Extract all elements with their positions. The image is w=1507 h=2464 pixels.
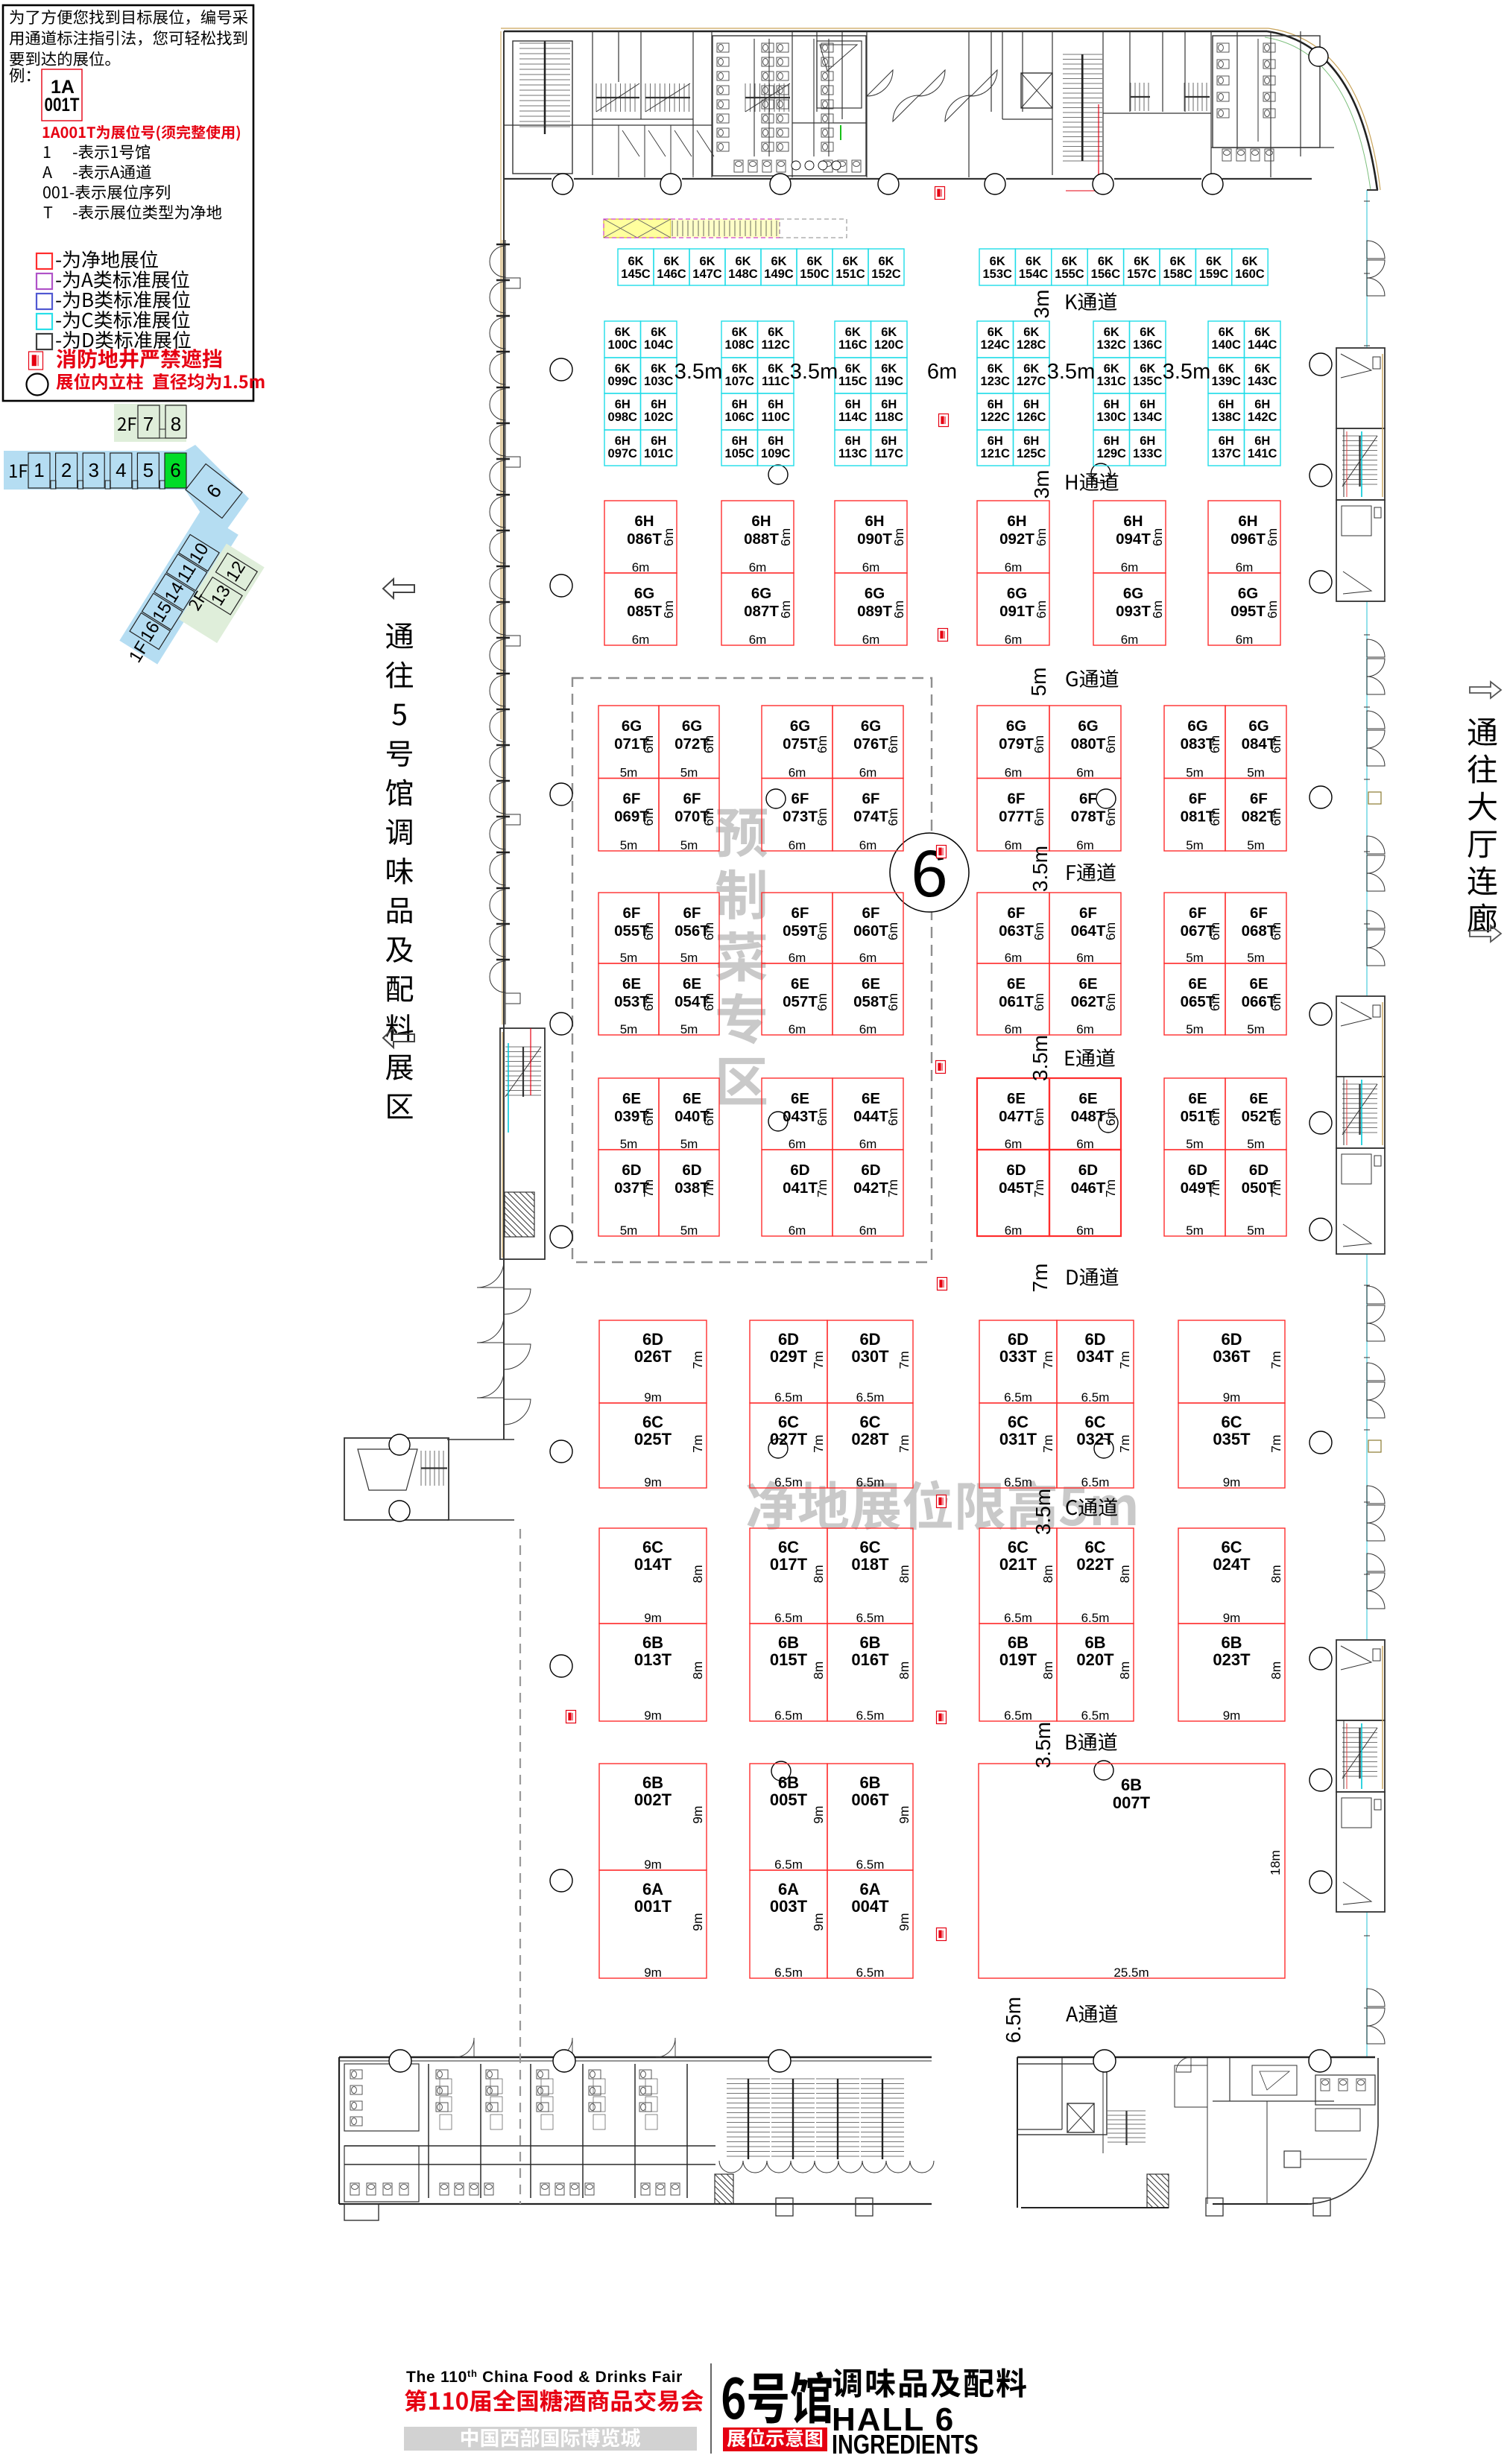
svg-text:3.5m: 3.5m: [1029, 846, 1052, 892]
svg-text:6.5m: 6.5m: [1081, 1475, 1110, 1489]
svg-text:9m: 9m: [644, 1708, 662, 1723]
svg-text:8m: 8m: [1269, 1565, 1283, 1583]
svg-text:155C: 155C: [1055, 267, 1084, 281]
svg-text:6H: 6H: [634, 513, 654, 530]
svg-text:6m: 6m: [661, 601, 676, 618]
svg-text:102C: 102C: [644, 411, 674, 424]
svg-text:6m: 6m: [778, 528, 793, 546]
svg-text:4: 4: [116, 459, 126, 481]
svg-text:6E: 6E: [1249, 1090, 1268, 1107]
svg-text:6E: 6E: [862, 1090, 880, 1107]
svg-text:6E: 6E: [1249, 975, 1268, 992]
svg-text:6H: 6H: [1140, 398, 1155, 411]
svg-text:6E: 6E: [791, 1090, 809, 1107]
svg-text:6C: 6C: [1008, 1538, 1029, 1556]
svg-text:058T: 058T: [853, 993, 888, 1010]
svg-text:6m: 6m: [1034, 528, 1049, 546]
svg-text:6m: 6m: [1005, 1022, 1023, 1036]
svg-text:3.5m: 3.5m: [674, 360, 722, 384]
svg-text:6m: 6m: [1236, 633, 1254, 647]
svg-text:6F: 6F: [1079, 905, 1097, 922]
svg-text:6E: 6E: [622, 1090, 641, 1107]
svg-text:6.5m: 6.5m: [774, 1475, 803, 1489]
svg-text:6K: 6K: [1134, 255, 1149, 268]
svg-text:062T: 062T: [1071, 993, 1106, 1010]
svg-text:6K: 6K: [1023, 362, 1039, 376]
svg-text:6K: 6K: [663, 255, 679, 268]
svg-text:6H: 6H: [1023, 434, 1039, 448]
svg-text:5m: 5m: [680, 1223, 698, 1238]
svg-text:6B: 6B: [778, 1773, 799, 1792]
svg-text:034T: 034T: [1076, 1347, 1114, 1366]
svg-text:6H: 6H: [1254, 398, 1270, 411]
svg-text:7m: 7m: [1269, 1435, 1283, 1453]
svg-text:096T: 096T: [1230, 531, 1266, 548]
svg-text:001T: 001T: [45, 95, 80, 115]
svg-text:002T: 002T: [634, 1790, 672, 1809]
svg-text:7m: 7m: [1103, 1179, 1118, 1197]
svg-text:7m: 7m: [1040, 1351, 1055, 1369]
svg-text:5m: 5m: [620, 1223, 638, 1238]
svg-text:6: 6: [170, 459, 180, 481]
svg-text:7m: 7m: [811, 1435, 826, 1453]
svg-text:6m: 6m: [1103, 1108, 1118, 1126]
svg-text:5m: 5m: [1247, 766, 1265, 780]
svg-text:6m: 6m: [1076, 766, 1094, 780]
svg-text:105C: 105C: [725, 447, 755, 460]
svg-text:107C: 107C: [725, 375, 755, 388]
svg-text:099C: 099C: [608, 375, 638, 388]
svg-text:6E: 6E: [1188, 975, 1207, 992]
svg-text:6m: 6m: [789, 1137, 806, 1151]
svg-text:6K: 6K: [845, 326, 861, 339]
svg-text:122C: 122C: [981, 411, 1011, 424]
svg-text:042T: 042T: [853, 1179, 888, 1197]
svg-text:3.5m: 3.5m: [1029, 1035, 1052, 1081]
svg-text:6K: 6K: [1023, 326, 1039, 339]
svg-text:048T: 048T: [1071, 1108, 1106, 1125]
svg-text:9m: 9m: [1223, 1708, 1241, 1723]
svg-text:003T: 003T: [770, 1897, 808, 1916]
svg-text:6m: 6m: [1103, 735, 1118, 753]
svg-text:6m: 6m: [641, 735, 656, 753]
svg-text:064T: 064T: [1071, 922, 1106, 940]
svg-text:6m: 6m: [859, 1022, 877, 1036]
svg-text:6C: 6C: [1221, 1538, 1242, 1556]
svg-text:044T: 044T: [853, 1108, 888, 1125]
svg-text:6G: 6G: [1123, 585, 1143, 602]
svg-text:159C: 159C: [1199, 267, 1229, 281]
svg-text:6m: 6m: [885, 735, 900, 753]
svg-text:6m: 6m: [749, 633, 767, 647]
svg-text:004T: 004T: [851, 1897, 889, 1916]
svg-text:6A: 6A: [642, 1880, 663, 1898]
svg-text:7m: 7m: [1117, 1351, 1132, 1369]
svg-text:6D: 6D: [859, 1330, 880, 1349]
svg-text:6H: 6H: [1219, 434, 1234, 448]
svg-text:The 110th China Food & Drinks: The 110th China Food & Drinks Fair: [406, 2368, 683, 2386]
svg-text:6H: 6H: [1007, 513, 1026, 530]
svg-text:6B: 6B: [642, 1633, 663, 1652]
svg-text:6C: 6C: [778, 1413, 799, 1431]
svg-text:130C: 130C: [1097, 411, 1127, 424]
svg-text:6m: 6m: [661, 528, 676, 546]
svg-text:6F: 6F: [792, 905, 809, 922]
svg-text:6H: 6H: [881, 398, 897, 411]
svg-text:6E: 6E: [791, 975, 809, 992]
svg-text:6H: 6H: [865, 513, 884, 530]
svg-text:6.5m: 6.5m: [774, 1611, 803, 1625]
svg-text:6m: 6m: [859, 1223, 877, 1238]
svg-text:6D: 6D: [642, 1330, 663, 1349]
svg-text:6K: 6K: [1061, 255, 1077, 268]
svg-text:6K: 6K: [988, 326, 1003, 339]
svg-text:6G: 6G: [1238, 585, 1258, 602]
svg-text:6G: 6G: [865, 585, 885, 602]
svg-text:5m: 5m: [620, 1137, 638, 1151]
svg-text:6F: 6F: [1189, 905, 1207, 922]
svg-text:6K: 6K: [806, 255, 822, 268]
svg-text:7m: 7m: [1040, 1435, 1055, 1453]
svg-text:6m: 6m: [1269, 993, 1283, 1011]
svg-text:016T: 016T: [851, 1650, 889, 1669]
svg-text:7m: 7m: [1207, 1179, 1222, 1197]
svg-text:104C: 104C: [644, 338, 674, 352]
svg-text:095T: 095T: [1230, 603, 1266, 620]
svg-text:140C: 140C: [1212, 338, 1242, 352]
svg-text:041T: 041T: [783, 1179, 818, 1197]
svg-text:7m: 7m: [897, 1351, 912, 1369]
svg-text:6m: 6m: [862, 560, 880, 574]
svg-text:6B: 6B: [778, 1633, 799, 1652]
svg-text:5m: 5m: [620, 1022, 638, 1036]
svg-text:6D: 6D: [1078, 1162, 1098, 1179]
svg-text:022T: 022T: [1076, 1555, 1114, 1574]
svg-text:7m: 7m: [690, 1351, 705, 1369]
svg-text:6K: 6K: [732, 326, 748, 339]
svg-text:8m: 8m: [811, 1565, 826, 1583]
svg-text:124C: 124C: [981, 338, 1011, 352]
svg-text:6m: 6m: [641, 808, 656, 826]
svg-text:6F: 6F: [623, 791, 641, 808]
svg-text:079T: 079T: [999, 735, 1034, 753]
svg-text:6.5m: 6.5m: [856, 1708, 885, 1723]
svg-text:3.5m: 3.5m: [790, 360, 838, 384]
svg-text:025T: 025T: [634, 1430, 672, 1448]
svg-text:6m: 6m: [1103, 808, 1118, 826]
svg-text:073T: 073T: [783, 808, 818, 826]
svg-text:098C: 098C: [608, 411, 638, 424]
svg-text:077T: 077T: [999, 808, 1034, 826]
svg-text:043T: 043T: [783, 1108, 818, 1125]
svg-text:6H: 6H: [768, 434, 783, 448]
svg-text:015T: 015T: [770, 1650, 808, 1669]
svg-text:112C: 112C: [761, 338, 790, 352]
svg-text:7m: 7m: [641, 1179, 656, 1197]
svg-text:092T: 092T: [999, 531, 1034, 548]
svg-text:6E: 6E: [1007, 1090, 1026, 1107]
svg-text:138C: 138C: [1212, 411, 1242, 424]
svg-text:6K: 6K: [1254, 362, 1270, 376]
svg-text:6m: 6m: [701, 922, 716, 940]
svg-text:027T: 027T: [770, 1430, 808, 1448]
svg-text:6C: 6C: [642, 1413, 663, 1431]
svg-text:023T: 023T: [1213, 1650, 1251, 1669]
svg-text:6G: 6G: [622, 718, 642, 735]
svg-text:6E: 6E: [1007, 975, 1026, 992]
svg-text:6m: 6m: [859, 1137, 877, 1151]
svg-text:6m: 6m: [815, 993, 830, 1011]
svg-text:6F: 6F: [1250, 905, 1268, 922]
svg-text:118C: 118C: [874, 411, 903, 424]
svg-text:045T: 045T: [999, 1179, 1034, 1197]
svg-text:6m: 6m: [1031, 993, 1046, 1011]
svg-text:133C: 133C: [1133, 447, 1163, 460]
svg-text:6E: 6E: [622, 975, 641, 992]
svg-text:6m: 6m: [891, 601, 906, 618]
svg-text:6K: 6K: [771, 255, 786, 268]
svg-text:131C: 131C: [1097, 375, 1127, 388]
svg-text:047T: 047T: [999, 1108, 1034, 1125]
svg-text:6A: 6A: [778, 1880, 799, 1898]
svg-text:6m: 6m: [1005, 766, 1023, 780]
svg-text:142C: 142C: [1248, 411, 1277, 424]
svg-text:6K: 6K: [615, 362, 631, 376]
svg-text:139C: 139C: [1212, 375, 1242, 388]
svg-text:063T: 063T: [999, 922, 1034, 940]
svg-text:153C: 153C: [982, 267, 1012, 281]
svg-text:6.5m: 6.5m: [1004, 1611, 1032, 1625]
svg-text:6m: 6m: [859, 951, 877, 965]
svg-text:6K: 6K: [1104, 362, 1119, 376]
svg-text:101C: 101C: [644, 447, 674, 460]
svg-text:6D: 6D: [622, 1162, 641, 1179]
svg-text:6C: 6C: [1084, 1413, 1105, 1431]
svg-text:137C: 137C: [1212, 447, 1242, 460]
svg-text:132C: 132C: [1097, 338, 1127, 352]
svg-text:9m: 9m: [690, 1913, 705, 1931]
svg-text:148C: 148C: [728, 267, 758, 281]
svg-text:6K: 6K: [651, 326, 666, 339]
svg-text:6K: 6K: [878, 255, 894, 268]
svg-text:078T: 078T: [1071, 808, 1106, 826]
svg-text:6m: 6m: [632, 560, 650, 574]
svg-text:116C: 116C: [838, 338, 868, 352]
svg-text:6K: 6K: [628, 255, 643, 268]
svg-text:9m: 9m: [1223, 1475, 1241, 1489]
svg-text:6m: 6m: [632, 633, 650, 647]
svg-text:6F: 6F: [1008, 905, 1026, 922]
svg-text:6G: 6G: [1007, 585, 1027, 602]
svg-text:9m: 9m: [1223, 1611, 1241, 1625]
svg-text:6K: 6K: [988, 362, 1003, 376]
svg-text:9m: 9m: [811, 1805, 826, 1823]
svg-text:088T: 088T: [744, 531, 779, 548]
svg-text:6m: 6m: [815, 922, 830, 940]
svg-text:157C: 157C: [1127, 267, 1157, 281]
svg-text:6m: 6m: [1207, 808, 1222, 826]
svg-text:6.5m: 6.5m: [1004, 1708, 1032, 1723]
svg-text:6H: 6H: [1023, 398, 1039, 411]
svg-text:6E: 6E: [683, 1090, 701, 1107]
svg-text:115C: 115C: [838, 375, 868, 388]
svg-text:154C: 154C: [1019, 267, 1049, 281]
svg-text:090T: 090T: [857, 531, 892, 548]
svg-text:035T: 035T: [1213, 1430, 1251, 1448]
svg-text:6B: 6B: [1221, 1633, 1242, 1652]
svg-text:5m: 5m: [620, 951, 638, 965]
svg-text:6m: 6m: [778, 601, 793, 618]
svg-text:119C: 119C: [874, 375, 903, 388]
svg-text:6G: 6G: [751, 585, 771, 602]
svg-text:6C: 6C: [1008, 1413, 1029, 1431]
svg-text:8m: 8m: [1117, 1662, 1132, 1679]
svg-text:6H: 6H: [651, 398, 666, 411]
svg-text:6m: 6m: [789, 766, 806, 780]
svg-text:6K: 6K: [1026, 255, 1041, 268]
svg-text:103C: 103C: [644, 375, 674, 388]
svg-text:6A: 6A: [859, 1880, 880, 1898]
svg-text:036T: 036T: [1213, 1347, 1251, 1366]
svg-text:106C: 106C: [725, 411, 755, 424]
svg-text:3m: 3m: [1030, 290, 1053, 319]
svg-text:007T: 007T: [1113, 1793, 1151, 1812]
svg-text:109C: 109C: [761, 447, 791, 460]
svg-text:6K: 6K: [1219, 362, 1234, 376]
svg-text:9m: 9m: [644, 1857, 662, 1872]
svg-text:7m: 7m: [1029, 1264, 1052, 1293]
svg-text:INGREDIENTS: INGREDIENTS: [832, 2429, 979, 2460]
svg-text:5m: 5m: [680, 766, 698, 780]
svg-text:6m: 6m: [862, 633, 880, 647]
svg-text:014T: 014T: [634, 1555, 672, 1574]
svg-text:6K: 6K: [1170, 255, 1186, 268]
svg-text:6E: 6E: [1078, 975, 1097, 992]
svg-text:3: 3: [88, 459, 98, 481]
svg-text:086T: 086T: [627, 531, 662, 548]
svg-text:6G: 6G: [861, 718, 881, 735]
svg-text:7m: 7m: [701, 1179, 716, 1197]
svg-text:6m: 6m: [1005, 633, 1023, 647]
svg-text:060T: 060T: [853, 922, 888, 940]
svg-text:7m: 7m: [1269, 1351, 1283, 1369]
svg-text:3m: 3m: [1030, 470, 1053, 499]
svg-text:5m: 5m: [1186, 838, 1204, 852]
svg-text:8m: 8m: [690, 1565, 705, 1583]
svg-text:6G: 6G: [1187, 718, 1207, 735]
svg-text:121C: 121C: [981, 447, 1011, 460]
svg-text:9m: 9m: [1223, 1390, 1241, 1404]
svg-text:6m: 6m: [641, 922, 656, 940]
svg-text:6m: 6m: [885, 808, 900, 826]
svg-text:127C: 127C: [1017, 375, 1046, 388]
svg-text:6H: 6H: [615, 398, 631, 411]
svg-text:6C: 6C: [778, 1538, 799, 1556]
svg-text:6F: 6F: [683, 791, 701, 808]
svg-text:6H: 6H: [651, 434, 666, 448]
svg-text:8m: 8m: [897, 1565, 912, 1583]
svg-text:087T: 087T: [744, 603, 779, 620]
svg-text:6H: 6H: [1104, 398, 1119, 411]
svg-text:6m: 6m: [1031, 808, 1046, 826]
svg-text:6E: 6E: [862, 975, 880, 992]
svg-text:5m: 5m: [680, 1137, 698, 1151]
svg-text:5m: 5m: [1186, 766, 1204, 780]
svg-text:6K: 6K: [768, 362, 783, 376]
svg-text:6m: 6m: [701, 735, 716, 753]
svg-text:6m: 6m: [789, 1022, 806, 1036]
svg-text:7m: 7m: [1269, 1179, 1283, 1197]
svg-text:6C: 6C: [1221, 1413, 1242, 1431]
svg-text:6K: 6K: [1104, 326, 1119, 339]
svg-text:6.5m: 6.5m: [856, 1390, 885, 1404]
svg-text:9m: 9m: [644, 1475, 662, 1489]
svg-text:5m: 5m: [680, 1022, 698, 1036]
svg-text:061T: 061T: [999, 993, 1034, 1010]
svg-text:6m: 6m: [1269, 808, 1283, 826]
svg-text:6K: 6K: [1140, 326, 1155, 339]
svg-text:6G: 6G: [1006, 718, 1026, 735]
svg-text:144C: 144C: [1248, 338, 1277, 352]
svg-text:6.5m: 6.5m: [774, 1708, 803, 1723]
svg-text:5m: 5m: [1186, 1223, 1204, 1238]
svg-text:3.5m: 3.5m: [1047, 360, 1095, 384]
svg-text:6H: 6H: [988, 434, 1003, 448]
svg-text:6m: 6m: [1150, 528, 1165, 546]
svg-text:7m: 7m: [811, 1351, 826, 1369]
svg-text:2: 2: [61, 459, 72, 481]
svg-text:156C: 156C: [1091, 267, 1121, 281]
svg-text:6m: 6m: [1236, 560, 1254, 574]
svg-text:3.5m: 3.5m: [1163, 360, 1210, 384]
svg-text:6.5m: 6.5m: [774, 1966, 803, 1980]
svg-text:6m: 6m: [1103, 922, 1118, 940]
svg-text:5m: 5m: [680, 838, 698, 852]
svg-text:5m: 5m: [1247, 1223, 1265, 1238]
svg-text:8m: 8m: [1040, 1662, 1055, 1679]
svg-text:151C: 151C: [835, 267, 865, 281]
svg-text:5m: 5m: [1186, 1022, 1204, 1036]
svg-text:7: 7: [143, 413, 154, 435]
svg-text:108C: 108C: [725, 338, 755, 352]
svg-text:146C: 146C: [657, 267, 686, 281]
svg-text:6m: 6m: [859, 766, 877, 780]
svg-text:6H: 6H: [845, 434, 861, 448]
svg-text:5m: 5m: [1247, 1137, 1265, 1151]
svg-text:033T: 033T: [999, 1347, 1037, 1366]
svg-text:6H: 6H: [1104, 434, 1119, 448]
svg-text:6H: 6H: [732, 398, 748, 411]
svg-text:091T: 091T: [999, 603, 1034, 620]
svg-text:6m: 6m: [1207, 922, 1222, 940]
svg-text:6m: 6m: [815, 1108, 830, 1126]
svg-text:6F: 6F: [1079, 791, 1097, 808]
svg-text:6B: 6B: [1121, 1776, 1142, 1794]
svg-text:089T: 089T: [857, 603, 892, 620]
svg-text:7m: 7m: [885, 1179, 900, 1197]
svg-text:6F: 6F: [1250, 791, 1268, 808]
svg-text:128C: 128C: [1017, 338, 1046, 352]
svg-text:6.5m: 6.5m: [1002, 1997, 1025, 2043]
svg-text:075T: 075T: [783, 735, 818, 753]
svg-text:6m: 6m: [789, 951, 806, 965]
svg-text:6.5m: 6.5m: [1081, 1708, 1110, 1723]
svg-text:9m: 9m: [644, 1611, 662, 1625]
svg-text:6H: 6H: [615, 434, 631, 448]
svg-text:6D: 6D: [1006, 1162, 1026, 1179]
svg-text:8m: 8m: [690, 1662, 705, 1679]
svg-text:6m: 6m: [1269, 735, 1283, 753]
